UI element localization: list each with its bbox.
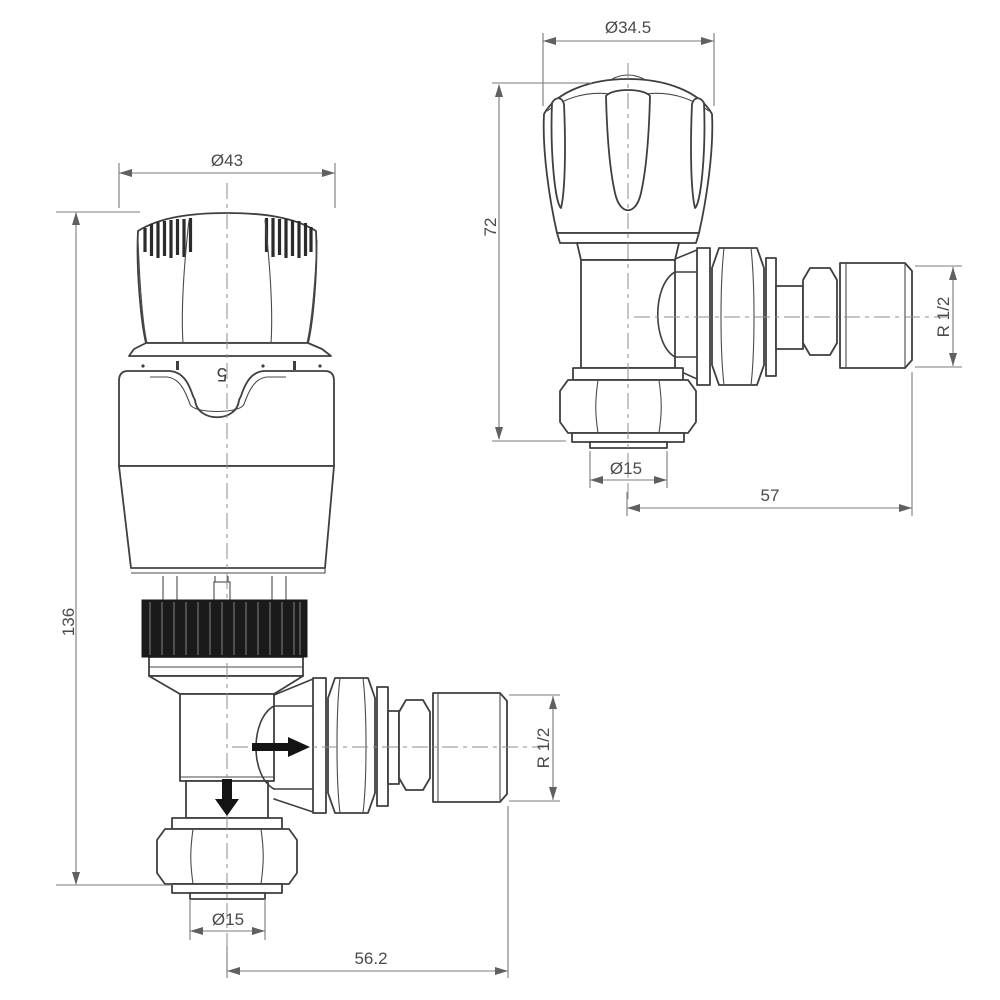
drawing-svg: 5 Ø43 136 R 1/2 Ø15 [0, 0, 1000, 1000]
manual-tail-hex [803, 268, 837, 355]
dim-manual-pipe-diameter: Ø15 [610, 459, 642, 478]
trv-knurled-ring [142, 600, 307, 657]
dim-trv-overall-height: 136 [59, 608, 78, 636]
dim-manual-head-diameter: Ø34.5 [605, 18, 651, 37]
dim-trv-head-diameter: Ø43 [211, 151, 243, 170]
dim-manual-head-height: 72 [481, 218, 500, 237]
dim-manual-thread-size: R 1/2 [934, 297, 953, 338]
trv-setting-number: 5 [217, 363, 228, 384]
trv-stem-pins [163, 576, 286, 600]
dim-trv-centre-to-end: 56.2 [354, 949, 387, 968]
dim-manual-centre-to-end: 57 [761, 486, 780, 505]
dim-trv-thread-size: R 1/2 [534, 728, 553, 769]
trv-tail-hex [399, 700, 430, 790]
trv-body-parts [119, 213, 507, 899]
trv-union-collar [313, 678, 326, 813]
manual-male-thread [840, 263, 912, 368]
trv-front-view: 5 Ø43 136 R 1/2 Ø15 [56, 151, 560, 978]
trv-union-nut [328, 678, 375, 813]
dim-trv-pipe-diameter: Ø15 [212, 910, 244, 929]
manual-valve-side-view: Ø34.5 72 R 1/2 Ø15 57 [481, 18, 962, 516]
trv-cap-base [129, 343, 331, 356]
valve-technical-drawing: 5 Ø43 136 R 1/2 Ø15 [0, 0, 1000, 1000]
manual-body-parts [544, 75, 912, 448]
trv-shoulder [149, 676, 303, 694]
